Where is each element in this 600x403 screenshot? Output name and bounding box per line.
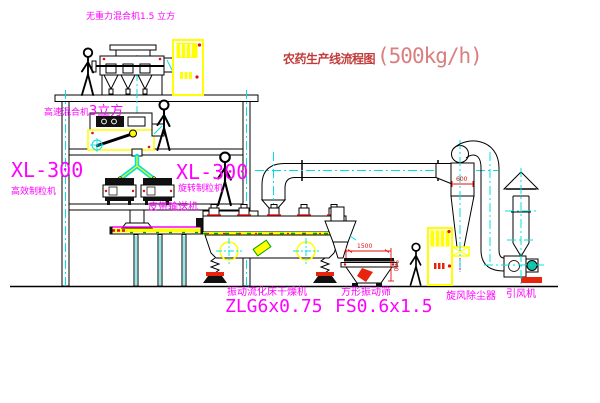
vibrating-screen xyxy=(341,248,397,286)
left-column xyxy=(62,95,69,286)
red-dot xyxy=(91,132,94,135)
y-chute xyxy=(118,156,156,181)
label-high-speed-mixer-name: 高速混合机 xyxy=(44,108,89,118)
label-belt-conveyor: 皮带输送机 xyxy=(148,203,198,213)
title-text: 农药生产线流程图 xyxy=(283,50,375,67)
spring-foot-right xyxy=(313,258,337,283)
control-cabinet-2 xyxy=(428,228,452,285)
red-dot xyxy=(103,58,106,61)
label-dryer-model: ZLG6x0.75 xyxy=(225,298,323,316)
dimension-cyclone-diameter: 600 xyxy=(456,177,467,183)
indicator-dot xyxy=(198,43,201,46)
label-high-speed-mixer-size: 3立方 xyxy=(89,104,123,119)
label-cyclone: 旋风除尘器 xyxy=(446,292,496,302)
label-granulator-left-model: XL-300 xyxy=(11,160,83,180)
label-sieve-model: FS0.6x1.5 xyxy=(335,298,433,316)
label-granulator-mid-name: 旋转制粒机 xyxy=(178,185,223,194)
indicator-dot xyxy=(195,75,198,78)
red-dot xyxy=(159,58,162,61)
label-high-speed-mixer: 高速混合机3立方 xyxy=(44,105,123,118)
label-fan: 引风机 xyxy=(506,290,536,300)
high-speed-mixer xyxy=(88,113,164,156)
diagram-title: 农药生产线流程图 (500kg/h) xyxy=(283,44,482,68)
person-figure xyxy=(411,243,421,285)
fluid-bed-dryer xyxy=(203,205,356,284)
dimension-sieve-length: 1500 xyxy=(357,244,372,250)
gravity-free-mixer xyxy=(92,45,176,95)
induced-draft-fan xyxy=(504,256,542,283)
pesticide-line-flow-diagram: 农药生产线流程图 (500kg/h) 无重力混合机1.5 立方 高速混合机3立方… xyxy=(0,0,600,403)
control-cabinet-1 xyxy=(173,40,203,95)
indicator-dot xyxy=(448,264,451,267)
person-figure xyxy=(82,48,93,95)
feed-duct xyxy=(262,160,447,215)
indicator-dot xyxy=(447,230,450,233)
fan-base xyxy=(521,277,542,283)
label-granulator-left-name: 高效制粒机 xyxy=(11,188,56,197)
title-capacity: (500kg/h) xyxy=(377,44,482,68)
red-dot xyxy=(148,146,151,149)
granulator-right xyxy=(141,178,174,205)
granulator-left xyxy=(103,178,136,205)
roof-beam xyxy=(55,95,258,102)
dimension-sieve-height: 540 xyxy=(392,260,398,271)
spring-foot-left xyxy=(203,258,227,283)
label-granulator-mid-model: XL-300 xyxy=(176,162,248,182)
label-gravity-free-mixer: 无重力混合机1.5 立方 xyxy=(86,13,175,22)
